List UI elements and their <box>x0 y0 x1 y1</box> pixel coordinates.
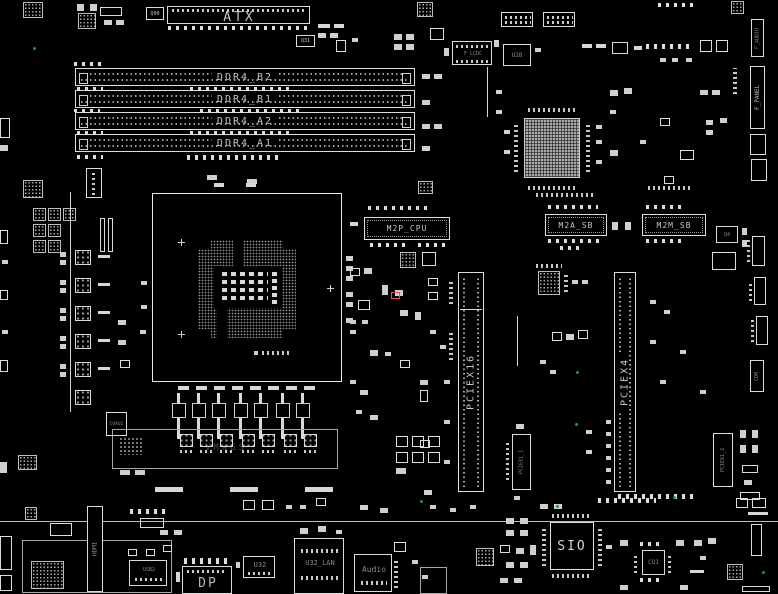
choke-pad <box>98 255 110 258</box>
capacitor <box>428 452 440 463</box>
header-connector[interactable] <box>501 12 533 27</box>
mosfet[interactable] <box>75 278 91 293</box>
pin-row <box>368 206 428 210</box>
smd-component <box>752 445 758 453</box>
usb2-label: USB2 <box>130 565 168 575</box>
alignment-mark <box>178 239 185 246</box>
pin-row <box>456 45 490 48</box>
smd-component <box>77 4 84 11</box>
smd-component <box>504 150 510 154</box>
smd-component <box>596 160 602 164</box>
dimm-slot-ddr4-b2[interactable]: DDR4_B2 <box>75 68 415 86</box>
smd-component <box>712 90 720 95</box>
capacitor <box>60 280 66 285</box>
capacitor <box>33 240 46 253</box>
pcie-x4-slot[interactable]: PCIEX4 <box>614 272 636 492</box>
pin-grid-connector[interactable] <box>31 561 64 589</box>
pin-row <box>648 186 692 190</box>
smd-component <box>506 530 514 536</box>
m2-slot-m2p-cpu[interactable]: M2P_CPU <box>364 217 450 240</box>
pin-row <box>130 509 166 514</box>
edge-connector[interactable] <box>86 168 102 198</box>
q4-chip[interactable]: Q4 <box>716 226 738 243</box>
q31-chip[interactable]: Q31 <box>296 35 315 47</box>
u28-chip[interactable]: U28 <box>503 44 531 66</box>
pin-column <box>449 330 453 360</box>
smd-component <box>444 48 449 56</box>
mosfet[interactable] <box>200 434 213 447</box>
pin-row <box>598 498 656 503</box>
smd-component <box>120 470 130 475</box>
smd-component <box>174 530 182 535</box>
smd-ic <box>680 150 694 160</box>
dimm-slot-ddr4-a1[interactable]: DDR4_A1 <box>75 134 415 152</box>
f-lcdc-header[interactable]: F_LCDC <box>452 41 492 65</box>
capacitor <box>396 452 408 463</box>
smd-component <box>360 505 368 510</box>
screw-hole <box>23 2 43 18</box>
smd-component <box>572 280 578 284</box>
smd-component <box>415 312 421 320</box>
capacitor <box>48 224 61 237</box>
pin-row <box>168 26 309 30</box>
pin-row <box>77 155 103 159</box>
smd-component <box>742 228 747 235</box>
smd-component <box>566 334 574 340</box>
smd-component <box>450 508 456 512</box>
cu1-chip[interactable]: CU1 <box>642 550 665 575</box>
pcie-x1-1-slot[interactable]: PCIEX1_1 <box>512 434 531 490</box>
smd-component <box>236 562 240 568</box>
smd-component <box>394 44 402 50</box>
smd-ic <box>350 268 360 276</box>
test-point <box>556 505 559 508</box>
smd-component <box>141 281 147 285</box>
u32-connector[interactable]: U32 <box>243 556 275 578</box>
pin-column <box>92 173 95 195</box>
edge-connector[interactable] <box>0 118 10 138</box>
chassis-component <box>420 567 447 594</box>
smd-ic <box>420 390 428 402</box>
smd-component <box>686 58 692 62</box>
m2-slot-m2a-sb[interactable]: M2A_SB <box>545 214 607 236</box>
smd-component <box>634 46 642 50</box>
smd-ic <box>420 440 430 448</box>
capacitor <box>60 372 66 377</box>
smd-ic <box>428 278 438 286</box>
capacitor <box>33 224 46 237</box>
pin-row <box>505 16 531 19</box>
pin-column <box>747 240 750 262</box>
smd-component <box>535 48 541 52</box>
capacitor <box>60 252 66 257</box>
smd-ic <box>752 498 766 508</box>
chipset-bga[interactable] <box>524 118 580 178</box>
smd-component <box>596 125 602 129</box>
smd-component <box>336 530 342 534</box>
smd-component <box>286 505 292 509</box>
pin-row <box>646 205 686 209</box>
smd-component <box>434 124 442 129</box>
pcie-x16-slot[interactable]: PCIEX16 <box>458 272 484 492</box>
mosfet[interactable] <box>284 434 297 447</box>
smd-component <box>2 260 8 264</box>
smd-component <box>740 430 746 438</box>
capacitor <box>606 432 611 436</box>
smd-ic <box>612 42 628 54</box>
pin-row <box>552 574 592 578</box>
fiducial-mark <box>246 183 256 187</box>
pcie-x1-2-slot[interactable]: PCIEX1_2 <box>713 433 733 487</box>
test-point <box>673 496 676 499</box>
dimm-label: DDR4_A1 <box>76 135 414 151</box>
smd-component <box>440 345 446 349</box>
smd-component <box>516 548 524 554</box>
mosfet[interactable] <box>304 434 317 447</box>
smd-component <box>444 380 450 384</box>
front-audio-header[interactable]: F_AUDIO <box>751 19 764 57</box>
smd-ic <box>664 176 674 184</box>
smd-ic <box>700 40 712 52</box>
smd-component <box>118 320 126 325</box>
cvau1-chip[interactable]: CVAU1 <box>106 412 127 436</box>
smd-component <box>434 74 442 79</box>
smd-component <box>406 44 414 50</box>
smd-ic <box>716 40 728 52</box>
smd-component <box>422 100 430 105</box>
u32-label: U32 <box>244 559 276 571</box>
motherboard-boardview: Q90 ATX Q31 F_LCDC U28 <box>0 0 778 594</box>
dp-connector[interactable]: DP <box>182 566 232 594</box>
pin-column <box>733 68 737 94</box>
mosfet[interactable] <box>262 434 275 447</box>
hdmi-connector[interactable]: HDMI <box>87 506 103 592</box>
mosfet[interactable] <box>220 434 233 447</box>
smd-ic <box>108 218 113 252</box>
smd-ic <box>262 500 274 510</box>
smd-component <box>155 487 183 492</box>
smd-component <box>506 562 514 568</box>
pin-row <box>640 542 664 546</box>
mosfet[interactable] <box>75 334 91 349</box>
smd-component <box>520 530 528 536</box>
pin-column <box>542 526 546 566</box>
inductor-pad <box>268 386 279 390</box>
smd-ic <box>394 542 406 552</box>
smd-component <box>135 470 145 475</box>
pin-column <box>598 526 602 566</box>
socket-notch <box>198 240 211 249</box>
capacitor <box>606 444 611 448</box>
com-header[interactable]: COM <box>750 360 764 392</box>
smd-component <box>650 300 656 304</box>
smd-component <box>140 330 146 334</box>
smd-component <box>596 140 602 144</box>
pin-row <box>200 450 212 453</box>
smd-component <box>706 120 713 125</box>
header-connector[interactable] <box>750 134 766 155</box>
header-connector[interactable] <box>751 159 767 181</box>
edge-connector[interactable] <box>0 575 12 591</box>
pin-row <box>301 576 339 580</box>
header-connector[interactable] <box>543 12 575 27</box>
pin-row <box>284 450 296 453</box>
socket-notch <box>198 329 211 338</box>
smd-component <box>660 380 666 384</box>
smd-component <box>612 222 618 230</box>
smd-ic <box>100 7 122 16</box>
test-point <box>420 500 423 503</box>
capacitor <box>60 364 66 369</box>
smd-component <box>382 285 388 295</box>
inductor-pad <box>232 386 243 390</box>
dp-label: DP <box>183 574 233 592</box>
smd-component <box>346 276 353 281</box>
audio-connector[interactable]: Audio <box>354 554 392 592</box>
capacitor <box>60 336 66 341</box>
smd-component <box>230 487 258 492</box>
alignment-mark <box>327 285 334 292</box>
smd-ic <box>316 498 326 506</box>
pin-row <box>220 450 232 453</box>
pin-row <box>370 243 410 247</box>
pin-row <box>304 450 316 453</box>
smd-component <box>400 310 408 316</box>
mosfet[interactable] <box>75 362 91 377</box>
qfn-chip[interactable] <box>538 271 560 295</box>
smd-component <box>540 504 548 509</box>
pin-row <box>242 450 254 453</box>
smd-component <box>516 424 524 429</box>
pin-row <box>640 578 664 582</box>
smd-component <box>680 350 686 354</box>
pin-column <box>514 122 518 172</box>
pin-row <box>505 21 531 24</box>
audio-label: Audio <box>355 563 393 575</box>
capacitor <box>33 208 46 221</box>
atx-power-connector[interactable]: ATX <box>167 6 310 24</box>
inductor-pad <box>214 386 225 390</box>
smd-component <box>740 445 746 453</box>
smd-component <box>430 505 436 509</box>
smd-component <box>364 268 372 274</box>
smd-component <box>610 110 616 114</box>
pin-row <box>547 21 573 24</box>
dimm-label: DDR4_A2 <box>76 113 414 129</box>
smd-component <box>708 538 716 544</box>
screw-hole <box>418 181 433 194</box>
pin-row <box>184 558 228 564</box>
smd-component <box>694 540 702 546</box>
smd-component <box>350 380 356 384</box>
smd-component <box>90 4 97 11</box>
smd-ic <box>660 118 670 126</box>
capacitor <box>60 288 66 293</box>
smd-ic <box>358 300 370 310</box>
smd-component <box>700 556 706 560</box>
mosfet[interactable] <box>75 250 91 265</box>
smd-component <box>118 340 126 345</box>
sio-chip[interactable]: SIO <box>550 522 594 570</box>
screw-hole <box>18 455 37 470</box>
pin-row <box>301 549 339 553</box>
smd-ic <box>25 507 37 520</box>
socket-notch <box>283 329 296 338</box>
pin-row <box>658 3 698 7</box>
smd-component <box>550 370 556 374</box>
dimm-slot-ddr4-a2[interactable]: DDR4_A2 <box>75 112 415 130</box>
atx-label: ATX <box>168 10 311 24</box>
smd-component <box>300 528 308 534</box>
smd-component <box>470 505 476 509</box>
socket-notch <box>283 240 296 249</box>
smd-component <box>430 330 436 334</box>
pin-row <box>187 570 227 573</box>
smd-component <box>610 150 618 156</box>
smd-component <box>582 280 588 284</box>
qfn-chip[interactable] <box>476 548 494 566</box>
smd-component <box>406 34 414 40</box>
smd-component <box>350 320 356 324</box>
dimm-label: DDR4_B1 <box>76 91 414 107</box>
pin-row <box>135 578 163 581</box>
pin-row <box>547 16 573 19</box>
smd-component <box>422 124 430 129</box>
dimm-slot-ddr4-b1[interactable]: DDR4_B1 <box>75 90 415 108</box>
smd-component <box>640 140 646 144</box>
trace-segment <box>517 316 518 366</box>
fiducial-mark <box>214 183 224 187</box>
choke-pad <box>98 367 110 370</box>
smd-ic <box>146 549 155 556</box>
smd-component <box>748 512 768 515</box>
smd-component <box>620 540 628 546</box>
inductor-pad <box>286 386 297 390</box>
smd-component <box>116 20 124 25</box>
smd-component <box>625 222 631 230</box>
capacitor <box>606 468 611 472</box>
pin-row <box>560 246 580 250</box>
capacitor-row <box>222 272 268 276</box>
m2-label: M2M_SB <box>643 215 705 235</box>
u32-lan-connector[interactable]: U32_LAN <box>294 538 344 594</box>
smd-component <box>254 351 258 355</box>
smd-ic <box>736 498 748 508</box>
m2-label: M2P_CPU <box>365 218 449 239</box>
smd-component <box>318 24 330 28</box>
smd-ic <box>243 500 255 510</box>
pin-column <box>506 440 509 480</box>
capacitor <box>396 436 408 447</box>
smd-component <box>720 118 727 123</box>
smd-ic <box>120 360 130 368</box>
smd-component <box>540 360 546 364</box>
test-point <box>33 47 36 50</box>
pin-row <box>536 193 596 197</box>
trace-segment <box>487 67 488 117</box>
pin-column <box>449 282 453 304</box>
capacitor-row <box>222 288 268 292</box>
m2-slot-m2m-sb[interactable]: M2M_SB <box>642 214 706 236</box>
edge-connector[interactable] <box>0 290 8 300</box>
mosfet[interactable] <box>75 390 91 405</box>
header-connector[interactable] <box>754 277 766 305</box>
pin-row <box>536 264 562 268</box>
mosfet[interactable] <box>242 434 255 447</box>
choke-pad <box>98 311 110 314</box>
q90-chip[interactable]: Q90 <box>146 7 164 20</box>
smd-component <box>690 570 704 573</box>
smd-component <box>2 330 8 334</box>
smd-component <box>582 44 592 48</box>
edge-connector[interactable] <box>0 360 8 372</box>
smd-component <box>396 468 406 474</box>
usb2-connector[interactable]: USB2 <box>129 560 167 586</box>
smd-component <box>346 292 353 297</box>
capacitor <box>60 316 66 321</box>
smd-ic <box>78 13 96 29</box>
header-connector[interactable] <box>751 524 762 556</box>
smd-component <box>610 90 618 96</box>
smd-component <box>514 496 520 500</box>
vrm-region-edge <box>70 192 71 412</box>
smd-component <box>346 256 353 261</box>
smd-component <box>362 320 368 324</box>
capacitor-row <box>222 280 268 284</box>
mosfet[interactable] <box>180 434 193 447</box>
edge-connector[interactable] <box>0 536 12 570</box>
smd-component <box>370 350 378 356</box>
smd-ic <box>430 28 444 40</box>
smd-component <box>744 480 752 485</box>
capacitor <box>48 208 61 221</box>
test-point <box>576 371 579 374</box>
pin-column <box>586 122 590 172</box>
smd-ic <box>163 545 172 552</box>
smd-component <box>160 530 168 535</box>
smd-component <box>700 390 706 394</box>
smd-ic <box>742 586 770 592</box>
smd-component <box>496 90 502 94</box>
smd-component <box>700 90 708 95</box>
header-connector[interactable] <box>756 316 768 345</box>
screw-hole <box>727 564 743 580</box>
socket-channel <box>217 306 227 338</box>
smd-component <box>606 545 612 549</box>
inductor-pad <box>250 386 261 390</box>
smd-component <box>672 58 678 62</box>
pin-row <box>361 581 387 585</box>
pin-column <box>749 281 752 301</box>
smd-component <box>494 40 499 47</box>
smd-component <box>506 518 514 524</box>
smd-component <box>334 24 344 28</box>
dimm-label: DDR4_B2 <box>76 69 414 85</box>
smd-component <box>664 310 670 314</box>
smd-component <box>356 410 362 414</box>
qfn-chip[interactable] <box>400 252 416 268</box>
smd-component <box>624 88 632 94</box>
header-connector[interactable] <box>752 236 765 266</box>
smd-component <box>444 420 450 424</box>
front-panel-header[interactable]: F_PANEL <box>750 66 765 129</box>
capacitor-bank <box>119 437 143 455</box>
edge-connector[interactable] <box>0 230 8 244</box>
mosfet[interactable] <box>75 306 91 321</box>
smd-component <box>530 545 536 555</box>
pin-row <box>528 108 578 112</box>
pin-column <box>668 553 671 573</box>
